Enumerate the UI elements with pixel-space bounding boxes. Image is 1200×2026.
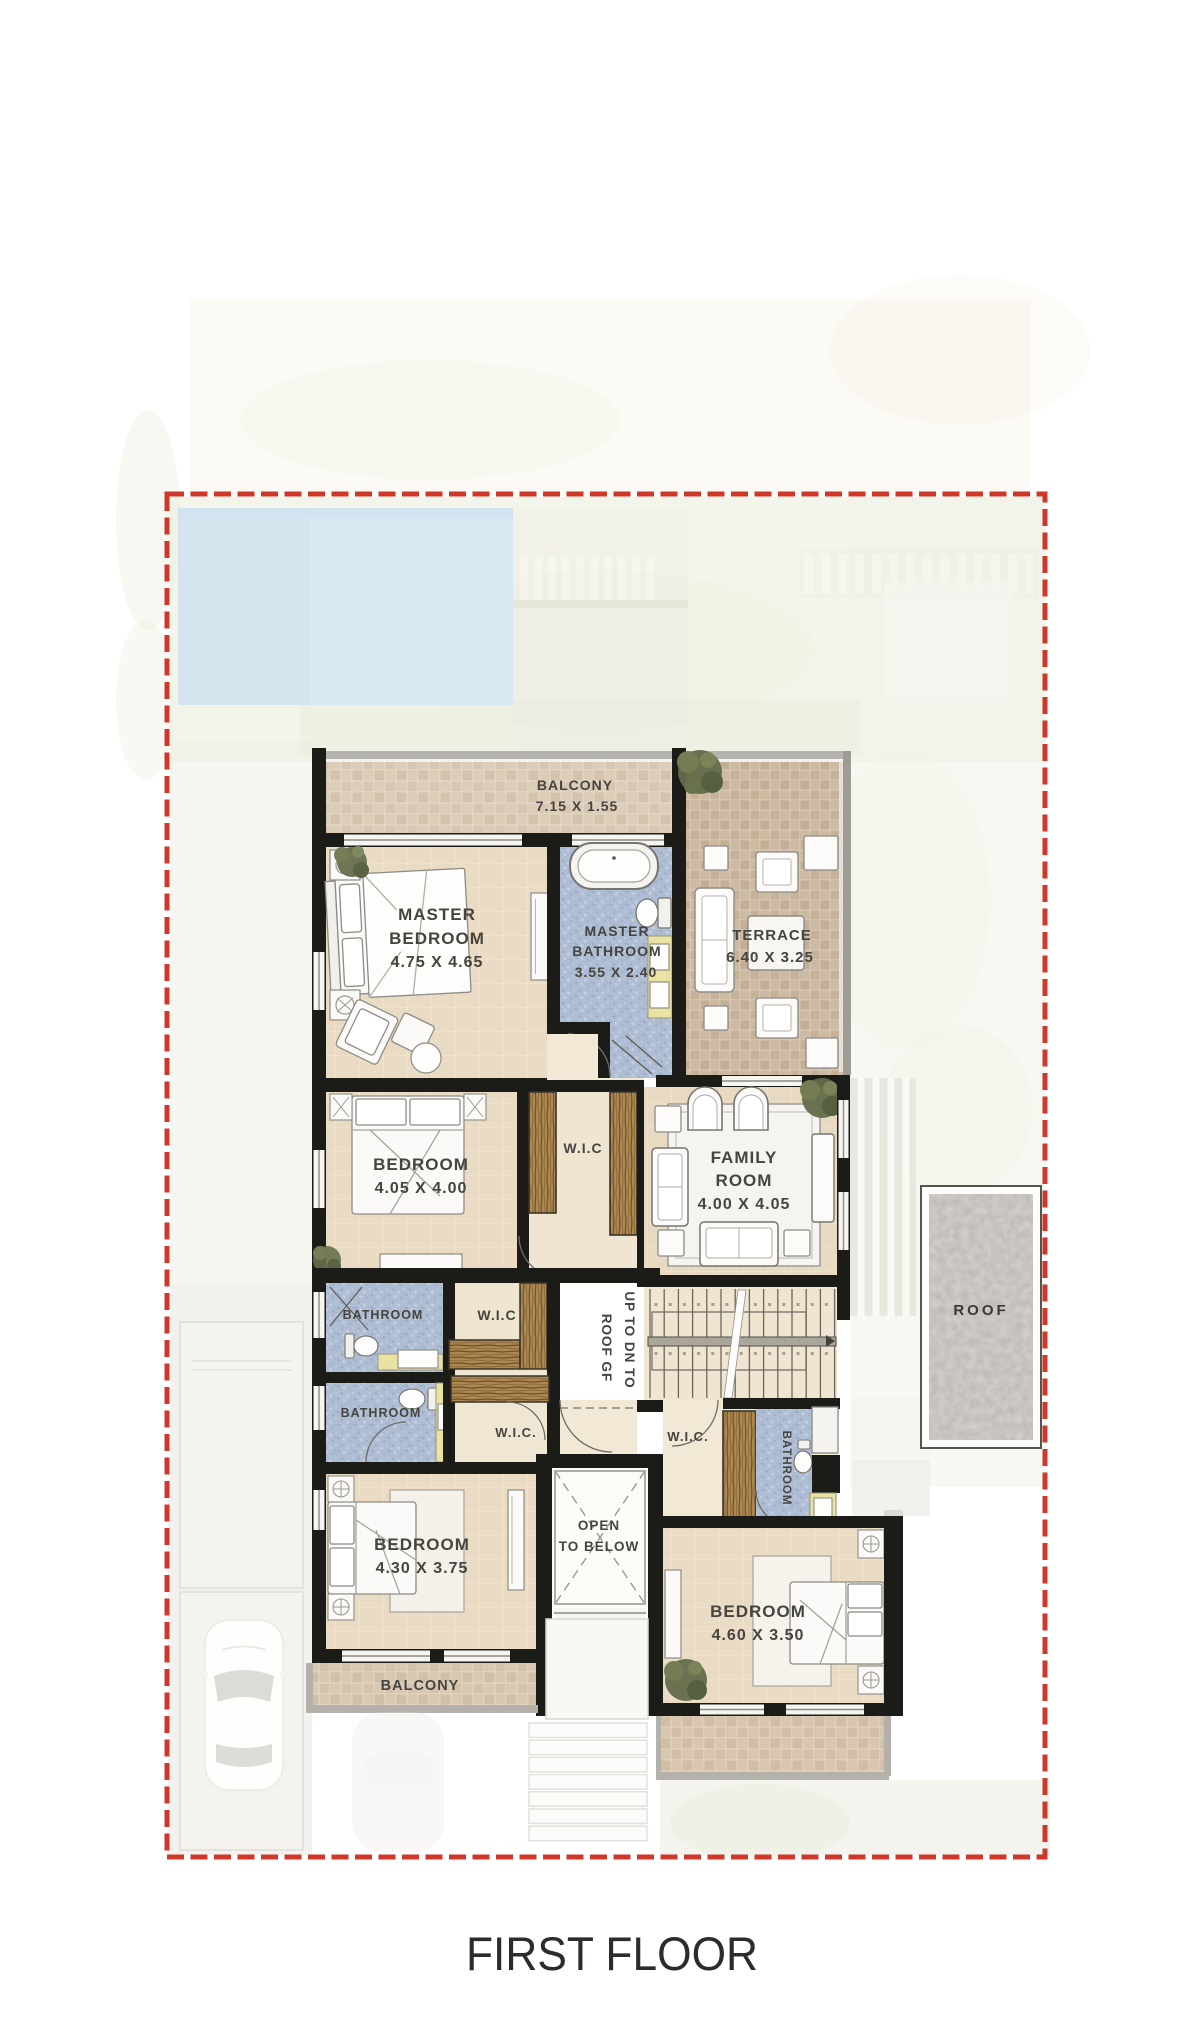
svg-text:W.I.C: W.I.C — [563, 1140, 602, 1156]
svg-text:3.55 X 2.40: 3.55 X 2.40 — [575, 964, 658, 980]
svg-text:ROOM: ROOM — [716, 1171, 773, 1190]
svg-text:4.05 X 4.00: 4.05 X 4.00 — [375, 1180, 468, 1197]
svg-text:BATHROOM: BATHROOM — [572, 943, 661, 959]
svg-text:ROOF: ROOF — [953, 1302, 1008, 1319]
svg-text:6.40 X 3.25: 6.40 X 3.25 — [726, 949, 814, 966]
svg-text:TO BELOW: TO BELOW — [559, 1539, 640, 1554]
svg-text:BALCONY: BALCONY — [537, 777, 613, 793]
svg-text:UP TO DN TO: UP TO DN TO — [622, 1291, 637, 1388]
svg-text:7.15 X 1.55: 7.15 X 1.55 — [536, 798, 619, 814]
svg-text:W.I.C.: W.I.C. — [667, 1429, 708, 1444]
svg-text:BATHROOM: BATHROOM — [343, 1308, 424, 1322]
svg-text:BEDROOM: BEDROOM — [374, 1535, 470, 1554]
svg-text:ROOF GF: ROOF GF — [599, 1314, 614, 1383]
svg-text:BATHROOM: BATHROOM — [341, 1406, 422, 1420]
svg-text:4.00 X 4.05: 4.00 X 4.05 — [698, 1196, 791, 1213]
svg-text:FIRST FLOOR: FIRST FLOOR — [466, 1927, 758, 1980]
svg-text:4.75 X 4.65: 4.75 X 4.65 — [391, 954, 484, 971]
svg-text:BATHROOM: BATHROOM — [780, 1431, 792, 1506]
svg-text:W.I.C.: W.I.C. — [495, 1425, 536, 1440]
svg-text:W.I.C: W.I.C — [477, 1307, 516, 1323]
svg-text:MASTER: MASTER — [398, 905, 476, 924]
svg-text:BEDROOM: BEDROOM — [389, 929, 485, 948]
svg-text:OPEN: OPEN — [578, 1518, 620, 1533]
svg-text:BALCONY: BALCONY — [381, 1678, 460, 1694]
svg-text:BEDROOM: BEDROOM — [373, 1155, 469, 1174]
svg-text:4.60 X 3.50: 4.60 X 3.50 — [712, 1627, 805, 1644]
svg-text:FAMILY: FAMILY — [711, 1148, 778, 1167]
svg-text:TERRACE: TERRACE — [732, 927, 812, 944]
svg-text:MASTER: MASTER — [584, 923, 649, 939]
svg-text:BEDROOM: BEDROOM — [710, 1602, 806, 1621]
svg-text:4.30 X 3.75: 4.30 X 3.75 — [376, 1560, 469, 1577]
